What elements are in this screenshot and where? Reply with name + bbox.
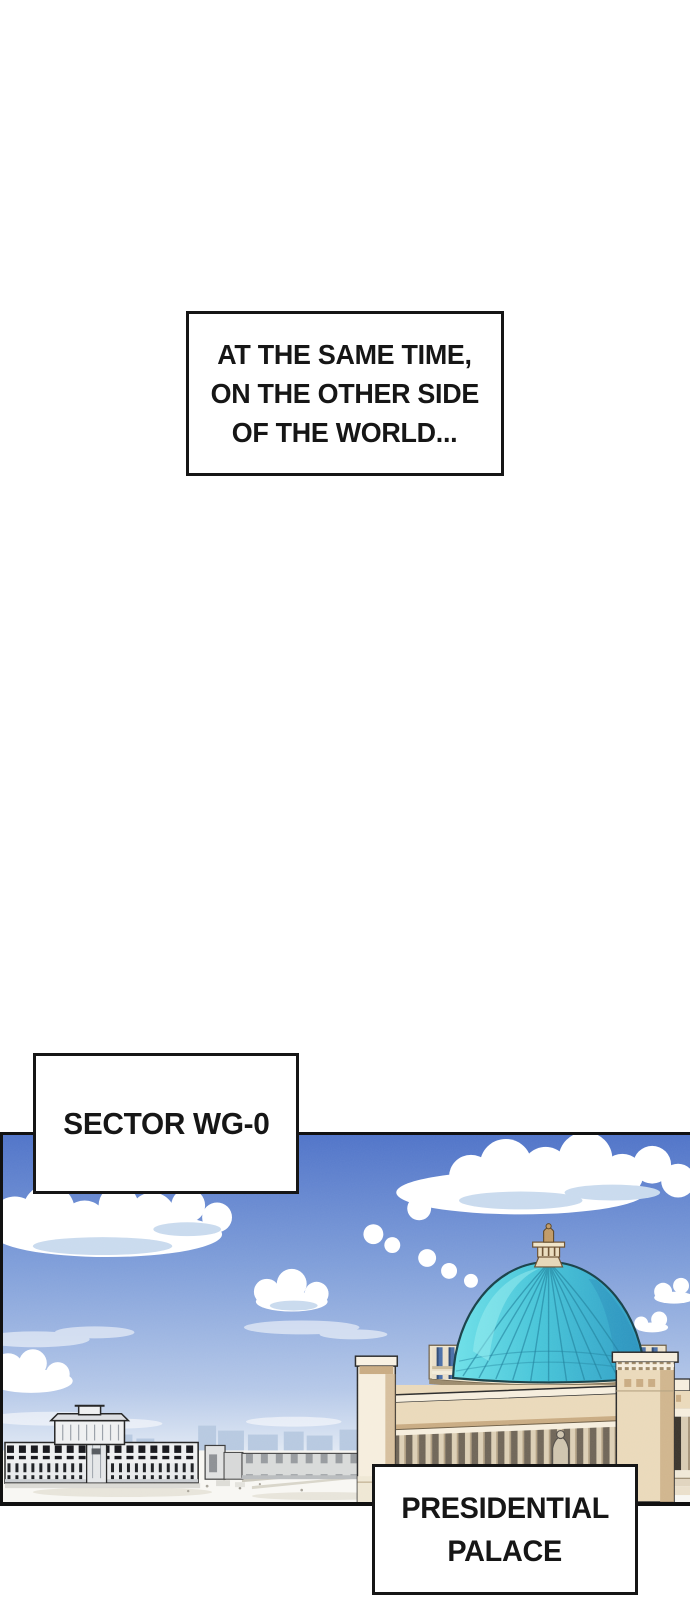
caption-box-sector: SECTOR WG-0 — [33, 1053, 299, 1194]
caption-line: AT THE SAME TIME, — [218, 335, 472, 374]
caption-box-palace: PRESIDENTIAL PALACE — [372, 1464, 638, 1595]
caption-line: PRESIDENTIAL — [401, 1487, 609, 1530]
caption-line: SECTOR WG-0 — [63, 1106, 269, 1142]
caption-line: ON THE OTHER SIDE — [211, 374, 479, 413]
caption-box-time: AT THE SAME TIME, ON THE OTHER SIDE OF T… — [186, 311, 504, 476]
caption-line: OF THE WORLD... — [232, 413, 458, 452]
caption-line: PALACE — [448, 1530, 563, 1573]
